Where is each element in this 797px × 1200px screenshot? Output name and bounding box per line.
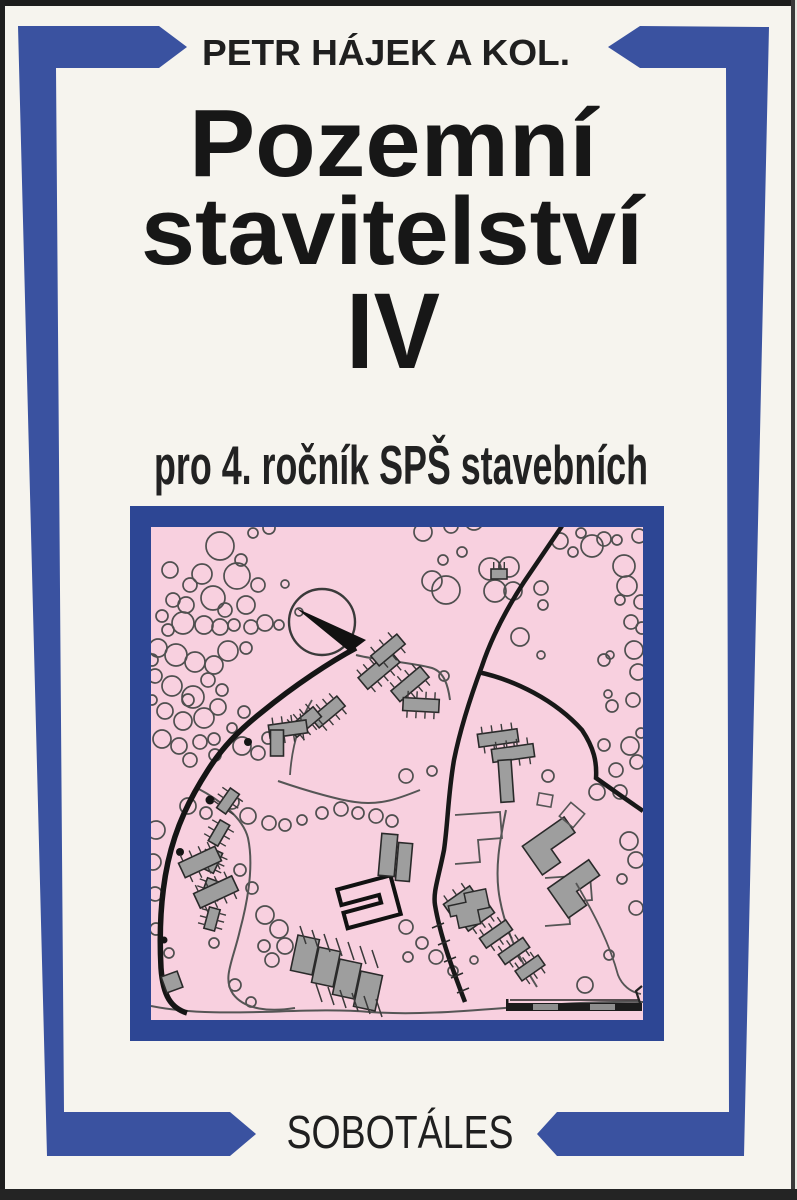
svg-text:IV: IV: [346, 270, 440, 391]
svg-text:SOBOTÁLES: SOBOTÁLES: [287, 1106, 514, 1158]
svg-text:pro 4. ročník SPŠ stavebních: pro 4. ročník SPŠ stavebních: [154, 434, 648, 496]
svg-text:PETR HÁJEK A KOL.: PETR HÁJEK A KOL.: [202, 32, 570, 73]
svg-text:stavitelství: stavitelství: [141, 178, 646, 285]
